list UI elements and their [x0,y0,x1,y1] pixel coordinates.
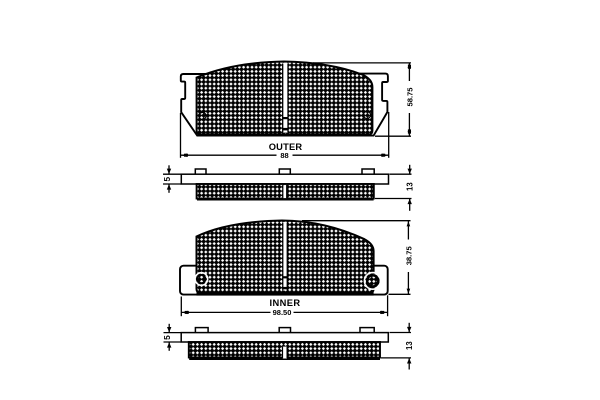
svg-text:58.75: 58.75 [405,87,414,107]
svg-text:5: 5 [162,335,172,340]
svg-text:38.75: 38.75 [404,246,413,266]
svg-text:INNER: INNER [270,298,301,308]
svg-text:13: 13 [405,341,414,350]
svg-text:88: 88 [280,151,288,160]
svg-text:98.50: 98.50 [273,308,292,317]
svg-text:5: 5 [162,177,172,182]
svg-text:13: 13 [406,182,415,191]
